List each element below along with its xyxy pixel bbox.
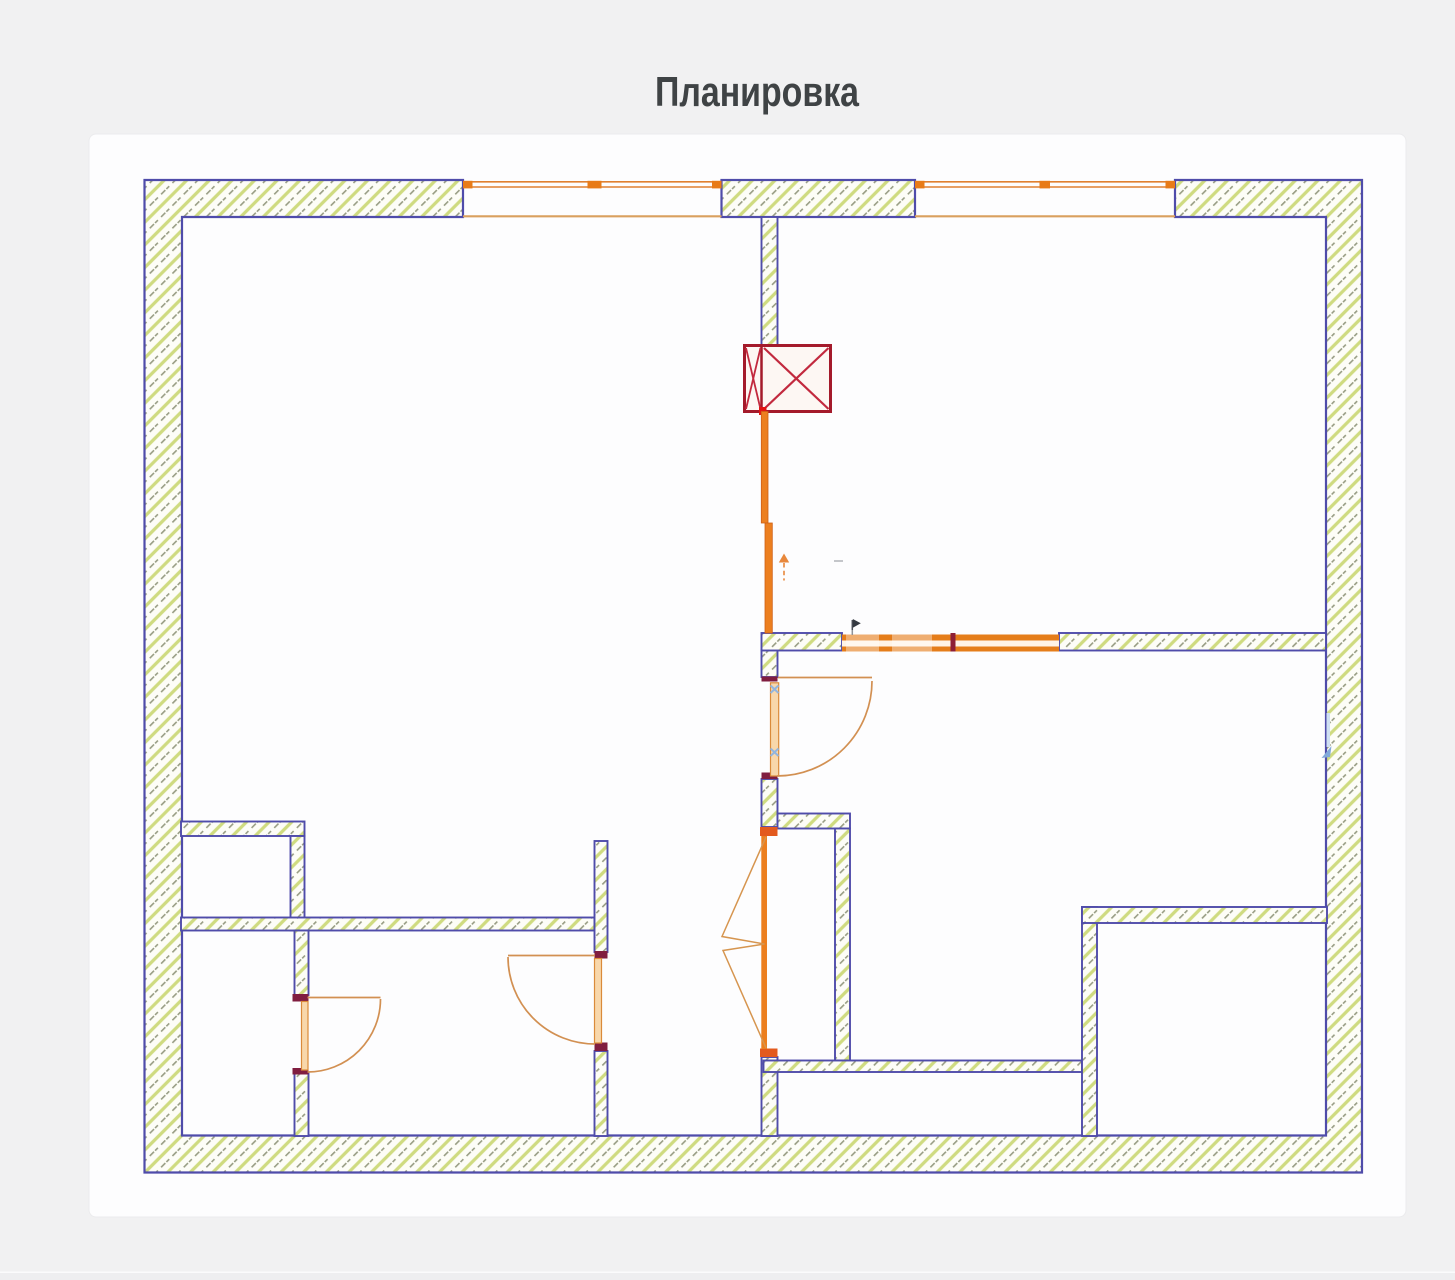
svg-text:Планировка: Планировка: [655, 68, 860, 115]
